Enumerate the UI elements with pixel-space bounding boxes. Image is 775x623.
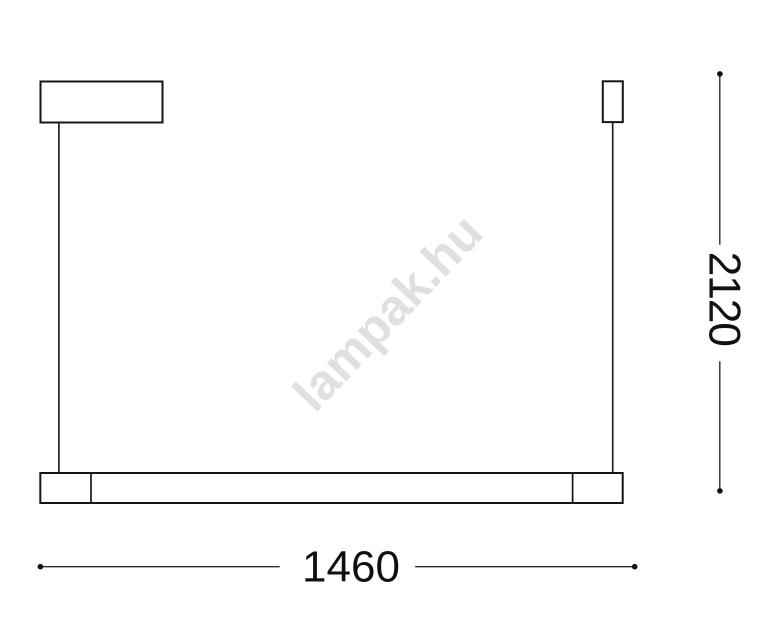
svg-text:2120: 2120 <box>700 252 749 347</box>
svg-text:1460: 1460 <box>302 542 400 591</box>
